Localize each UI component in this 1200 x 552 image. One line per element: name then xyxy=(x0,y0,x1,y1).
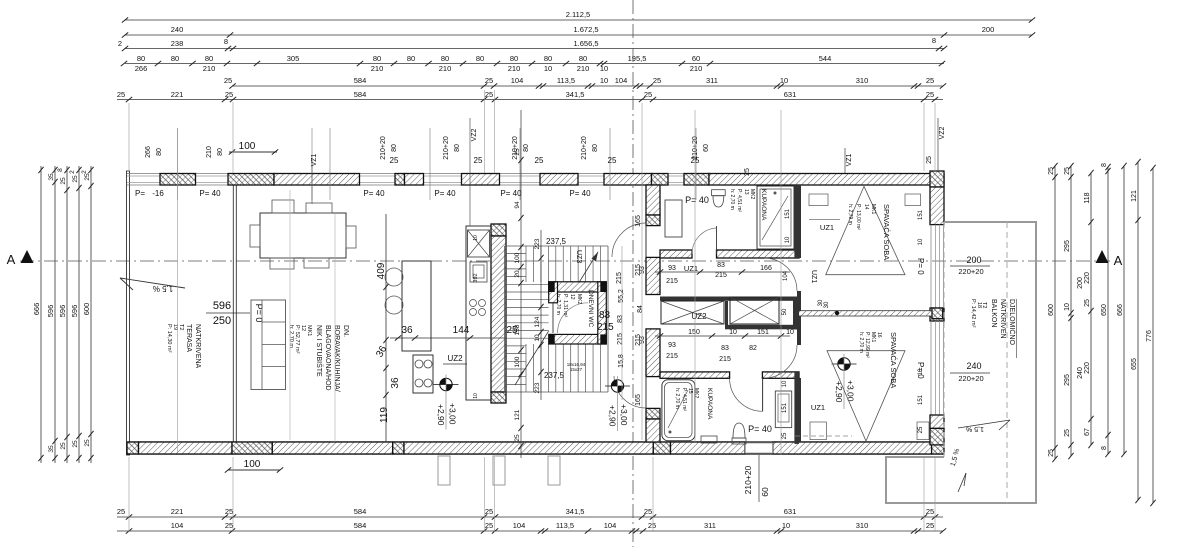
svg-text:25: 25 xyxy=(60,177,67,185)
svg-text:25: 25 xyxy=(744,168,751,176)
svg-text:NIK I STUBIŠTE: NIK I STUBIŠTE xyxy=(315,325,324,377)
svg-text:151: 151 xyxy=(785,208,791,219)
svg-text:35: 35 xyxy=(48,445,55,453)
svg-text:100: 100 xyxy=(239,141,256,152)
svg-text:10: 10 xyxy=(544,64,552,73)
svg-text:650: 650 xyxy=(1101,304,1108,316)
svg-text:2: 2 xyxy=(118,39,122,48)
svg-text:25: 25 xyxy=(648,521,656,530)
svg-text:P: 14,42 m²: P: 14,42 m² xyxy=(970,299,976,328)
svg-text:10: 10 xyxy=(600,76,608,85)
svg-text:10: 10 xyxy=(473,235,479,241)
svg-text:P= 40: P= 40 xyxy=(434,189,456,198)
svg-text:25: 25 xyxy=(1084,299,1091,307)
svg-text:25: 25 xyxy=(485,90,493,99)
svg-text:80: 80 xyxy=(407,54,415,63)
svg-text:P: 4,51 m²: P: 4,51 m² xyxy=(736,189,742,212)
svg-text:93: 93 xyxy=(639,266,646,274)
svg-text:h: 2,79 m: h: 2,79 m xyxy=(847,204,853,225)
svg-text:BALKON: BALKON xyxy=(990,299,997,327)
svg-text:10: 10 xyxy=(600,64,608,73)
svg-text:104: 104 xyxy=(513,521,526,530)
svg-text:80: 80 xyxy=(592,144,599,152)
svg-text:25: 25 xyxy=(535,156,544,165)
svg-text:10: 10 xyxy=(918,238,924,245)
svg-text:10: 10 xyxy=(782,521,790,530)
svg-text:93: 93 xyxy=(639,336,646,344)
svg-text:25: 25 xyxy=(390,156,399,165)
svg-text:25: 25 xyxy=(1048,167,1055,175)
svg-text:60: 60 xyxy=(692,54,700,63)
svg-text:215: 215 xyxy=(719,356,731,363)
svg-text:P= 40: P= 40 xyxy=(500,189,522,198)
svg-text:584: 584 xyxy=(354,76,367,85)
svg-text:25: 25 xyxy=(117,90,125,99)
svg-text:596: 596 xyxy=(58,305,67,318)
svg-text:158: 158 xyxy=(514,324,521,335)
svg-text:215: 215 xyxy=(666,278,678,285)
svg-text:600: 600 xyxy=(82,303,91,316)
svg-text:25: 25 xyxy=(514,148,521,156)
svg-text:240: 240 xyxy=(966,361,981,371)
svg-text:2: 2 xyxy=(69,170,76,174)
svg-text:2: 2 xyxy=(81,170,88,174)
svg-text:210+20: 210+20 xyxy=(743,465,753,494)
svg-text:UZ1: UZ1 xyxy=(684,264,698,273)
svg-text:8: 8 xyxy=(1101,163,1108,167)
svg-text:SPAVAĆA SOBA: SPAVAĆA SOBA xyxy=(889,332,898,388)
svg-text:215: 215 xyxy=(666,353,678,360)
svg-text:25: 25 xyxy=(84,439,91,447)
svg-text:210: 210 xyxy=(577,64,590,73)
svg-text:215: 215 xyxy=(617,333,624,345)
svg-text:631: 631 xyxy=(784,90,797,99)
svg-text:144: 144 xyxy=(453,325,470,336)
svg-text:584: 584 xyxy=(354,507,367,516)
svg-text:14: 14 xyxy=(863,204,869,210)
svg-text:221: 221 xyxy=(171,90,184,99)
svg-text:25: 25 xyxy=(117,507,125,516)
svg-text:12: 12 xyxy=(569,294,575,300)
svg-text:25: 25 xyxy=(474,156,483,165)
svg-text:210: 210 xyxy=(508,64,521,73)
svg-text:220+20: 220+20 xyxy=(958,267,983,276)
svg-text:238: 238 xyxy=(171,39,184,48)
svg-text:104: 104 xyxy=(511,76,524,85)
svg-text:+3,00: +3,00 xyxy=(846,380,856,402)
svg-text:210: 210 xyxy=(203,64,216,73)
svg-text:113,5: 113,5 xyxy=(557,76,575,85)
svg-text:10: 10 xyxy=(1064,303,1071,311)
svg-text:220: 220 xyxy=(1084,362,1091,374)
svg-text:80: 80 xyxy=(454,144,461,152)
svg-text:210+20: 210+20 xyxy=(581,136,588,160)
svg-text:25: 25 xyxy=(72,175,79,183)
svg-text:h: 2,70 m: h: 2,70 m xyxy=(555,294,561,315)
svg-text:596: 596 xyxy=(46,305,55,318)
svg-text:10: 10 xyxy=(780,76,788,85)
svg-text:655: 655 xyxy=(1131,358,1138,370)
svg-text:210: 210 xyxy=(206,146,213,158)
svg-text:P: 13,00 m²: P: 13,00 m² xyxy=(855,204,861,230)
svg-text:13: 13 xyxy=(743,189,749,195)
svg-text:341,5: 341,5 xyxy=(566,90,585,99)
svg-text:25: 25 xyxy=(60,442,67,450)
svg-text:SPAVAĆA SOBA: SPAVAĆA SOBA xyxy=(882,204,891,260)
svg-text:25: 25 xyxy=(84,173,91,181)
svg-text:P= 0: P= 0 xyxy=(254,304,264,323)
svg-text:DNEVNI WC: DNEVNI WC xyxy=(587,290,594,328)
svg-text:MK2: MK2 xyxy=(576,294,582,305)
svg-text:25: 25 xyxy=(926,521,934,530)
svg-text:237,5: 237,5 xyxy=(546,237,567,246)
svg-text:119: 119 xyxy=(379,407,390,423)
svg-text:P= 40: P= 40 xyxy=(685,195,709,205)
svg-text:596: 596 xyxy=(70,305,79,318)
svg-text:25: 25 xyxy=(926,90,934,99)
svg-text:80: 80 xyxy=(391,144,398,152)
svg-text:151: 151 xyxy=(918,394,924,405)
svg-text:25: 25 xyxy=(485,521,493,530)
svg-text:+2,90: +2,90 xyxy=(608,405,618,427)
svg-text:25: 25 xyxy=(225,521,233,530)
svg-text:P: 4,51 m²: P: 4,51 m² xyxy=(681,388,687,411)
svg-text:25: 25 xyxy=(1064,167,1071,175)
svg-text:A: A xyxy=(7,252,16,267)
svg-text:166: 166 xyxy=(760,265,772,272)
svg-text:83: 83 xyxy=(617,315,624,323)
svg-text:83: 83 xyxy=(717,262,725,269)
svg-text:200: 200 xyxy=(1077,277,1084,289)
svg-text:+3,00: +3,00 xyxy=(448,403,458,425)
svg-text:BORAVAK/KUHINJA/: BORAVAK/KUHINJA/ xyxy=(333,325,340,392)
svg-text:25: 25 xyxy=(926,156,933,164)
svg-text:165: 165 xyxy=(635,215,642,227)
svg-text:MK2: MK2 xyxy=(749,189,755,200)
svg-text:200: 200 xyxy=(966,255,981,265)
svg-text:10: 10 xyxy=(729,329,737,336)
svg-text:25: 25 xyxy=(224,76,232,85)
svg-text:93: 93 xyxy=(668,342,676,349)
svg-text:15: 15 xyxy=(687,388,693,394)
svg-text:93: 93 xyxy=(668,265,676,272)
svg-text:NATKRIVEN: NATKRIVEN xyxy=(999,299,1006,339)
svg-text:311: 311 xyxy=(706,76,718,85)
svg-text:20: 20 xyxy=(514,270,521,278)
svg-text:100: 100 xyxy=(244,459,261,470)
svg-text:10: 10 xyxy=(473,393,479,399)
svg-text:8: 8 xyxy=(224,37,228,46)
svg-text:104: 104 xyxy=(604,521,617,530)
svg-text:584: 584 xyxy=(354,90,367,99)
svg-text:80: 80 xyxy=(579,54,587,63)
svg-text:80: 80 xyxy=(217,148,224,156)
svg-text:67: 67 xyxy=(1084,428,1091,436)
svg-text:MK2: MK2 xyxy=(693,388,699,399)
svg-text:25: 25 xyxy=(72,440,79,448)
svg-text:VZ1: VZ1 xyxy=(311,153,318,166)
svg-text:UZ1: UZ1 xyxy=(811,403,825,412)
svg-text:P= 40: P= 40 xyxy=(748,424,772,434)
svg-text:215: 215 xyxy=(597,322,614,333)
svg-text:P: 14,30 m²: P: 14,30 m² xyxy=(166,324,172,353)
svg-text:25: 25 xyxy=(653,76,661,85)
svg-text:25: 25 xyxy=(926,76,934,85)
svg-text:NATKRIVENA: NATKRIVENA xyxy=(194,324,201,369)
svg-text:BLAGOVAONA/HOD: BLAGOVAONA/HOD xyxy=(324,325,331,391)
svg-text:2.112,5: 2.112,5 xyxy=(566,10,590,19)
svg-text:80: 80 xyxy=(171,54,179,63)
svg-text:h: 2,70 m: h: 2,70 m xyxy=(858,332,864,353)
svg-text:DJELOMIČNO: DJELOMIČNO xyxy=(1008,299,1017,345)
svg-text:409: 409 xyxy=(376,262,387,279)
svg-text:776: 776 xyxy=(1146,330,1153,342)
svg-text:10: 10 xyxy=(785,236,791,243)
svg-text:1.672,5: 1.672,5 xyxy=(573,25,598,34)
svg-text:80: 80 xyxy=(137,54,145,63)
svg-text:DN.: DN. xyxy=(342,325,349,337)
svg-text:240: 240 xyxy=(1077,367,1084,379)
svg-text:-16: -16 xyxy=(152,189,164,198)
svg-text:113,5: 113,5 xyxy=(556,521,574,530)
svg-text:237,5: 237,5 xyxy=(544,371,565,380)
svg-text:341,5: 341,5 xyxy=(566,507,585,516)
svg-text:124: 124 xyxy=(534,316,541,327)
svg-text:10: 10 xyxy=(786,329,794,336)
svg-text:544: 544 xyxy=(819,54,832,63)
svg-text:121: 121 xyxy=(1131,190,1138,202)
svg-text:80: 80 xyxy=(544,54,552,63)
svg-text:15,8: 15,8 xyxy=(618,354,625,368)
svg-text:295: 295 xyxy=(1064,240,1071,252)
svg-text:1.656,5: 1.656,5 xyxy=(573,39,598,48)
svg-text:60: 60 xyxy=(703,144,710,152)
svg-text:TERASA: TERASA xyxy=(185,324,192,352)
svg-text:25: 25 xyxy=(514,434,521,442)
svg-text:295: 295 xyxy=(1064,374,1071,386)
svg-text:100: 100 xyxy=(514,356,521,367)
svg-text:118: 118 xyxy=(1084,192,1091,203)
svg-text:104: 104 xyxy=(615,76,628,85)
svg-text:UZ1: UZ1 xyxy=(820,223,834,232)
svg-text:104: 104 xyxy=(171,521,184,530)
svg-text:266: 266 xyxy=(145,146,152,158)
svg-text:210+20: 210+20 xyxy=(380,136,387,160)
svg-text:151: 151 xyxy=(918,209,924,220)
svg-text:UZ2: UZ2 xyxy=(447,354,463,363)
svg-text:15x27: 15x27 xyxy=(570,367,583,372)
svg-text:VZ1: VZ1 xyxy=(846,153,853,166)
svg-text:25: 25 xyxy=(608,156,617,165)
svg-text:83: 83 xyxy=(599,310,611,321)
svg-text:210: 210 xyxy=(439,64,452,73)
svg-text:P= 40: P= 40 xyxy=(199,189,221,198)
svg-text:1,5 %: 1,5 % xyxy=(153,284,173,293)
svg-text:311: 311 xyxy=(704,521,716,530)
svg-text:35: 35 xyxy=(48,173,55,181)
svg-text:h: 2,70 m: h: 2,70 m xyxy=(729,189,735,210)
svg-text:83: 83 xyxy=(721,345,729,352)
svg-text:25: 25 xyxy=(918,426,924,433)
svg-text:UZ1: UZ1 xyxy=(810,270,817,283)
svg-text:+2,90: +2,90 xyxy=(436,404,446,426)
svg-text:80: 80 xyxy=(441,54,449,63)
svg-text:25: 25 xyxy=(644,507,652,516)
svg-text:392: 392 xyxy=(473,273,479,282)
svg-text:25: 25 xyxy=(485,507,493,516)
svg-text:VZ2: VZ2 xyxy=(471,128,478,141)
svg-text:25: 25 xyxy=(225,90,233,99)
svg-text:25: 25 xyxy=(782,432,788,439)
svg-text:215: 215 xyxy=(715,272,727,279)
svg-text:195,5: 195,5 xyxy=(628,54,647,63)
svg-text:220: 220 xyxy=(1084,272,1091,284)
svg-text:55,2: 55,2 xyxy=(618,289,625,303)
svg-text:25: 25 xyxy=(1064,429,1071,437)
svg-text:210: 210 xyxy=(371,64,384,73)
svg-text:+3,00: +3,00 xyxy=(619,404,629,426)
svg-text:UZ3: UZ3 xyxy=(575,250,582,263)
svg-text:50: 50 xyxy=(782,308,788,315)
svg-text:666: 666 xyxy=(1117,304,1124,316)
svg-text:165: 165 xyxy=(635,394,642,406)
svg-text:8: 8 xyxy=(1101,446,1108,450)
svg-text:KUPAONA: KUPAONA xyxy=(706,388,713,420)
svg-text:+2,90: +2,90 xyxy=(834,381,844,403)
svg-text:KUPAONA: KUPAONA xyxy=(760,189,767,221)
svg-text:121: 121 xyxy=(514,409,521,420)
svg-text:P: 1,31 m²: P: 1,31 m² xyxy=(562,294,568,317)
svg-text:10: 10 xyxy=(782,380,788,387)
svg-text:223: 223 xyxy=(534,238,541,249)
svg-text:250: 250 xyxy=(213,315,231,327)
svg-text:80: 80 xyxy=(523,144,530,152)
svg-text:240: 240 xyxy=(171,25,184,34)
svg-text:82: 82 xyxy=(749,345,757,352)
svg-text:P=: P= xyxy=(135,189,145,198)
svg-text:P= 40: P= 40 xyxy=(363,189,385,198)
svg-text:631: 631 xyxy=(784,507,797,516)
svg-text:305: 305 xyxy=(287,54,300,63)
svg-text:310: 310 xyxy=(856,76,869,85)
svg-text:P= 0: P= 0 xyxy=(916,362,925,379)
svg-text:1,5 %: 1,5 % xyxy=(966,425,984,432)
svg-text:80: 80 xyxy=(156,148,163,156)
svg-text:25: 25 xyxy=(644,90,652,99)
svg-text:VZ2: VZ2 xyxy=(939,126,946,139)
svg-text:220+20: 220+20 xyxy=(958,374,983,383)
svg-text:8: 8 xyxy=(932,36,936,45)
svg-text:30: 30 xyxy=(824,301,830,308)
svg-text:666: 666 xyxy=(32,303,41,316)
svg-text:A: A xyxy=(1114,253,1123,268)
svg-text:223: 223 xyxy=(534,382,541,393)
svg-text:584: 584 xyxy=(354,521,367,530)
svg-text:150: 150 xyxy=(688,329,700,336)
svg-text:200: 200 xyxy=(982,25,995,34)
svg-text:310: 310 xyxy=(856,521,869,530)
svg-text:94: 94 xyxy=(514,201,521,209)
svg-text:36: 36 xyxy=(390,377,401,389)
svg-text:151: 151 xyxy=(757,329,769,336)
svg-text:25: 25 xyxy=(485,76,493,85)
svg-text:25: 25 xyxy=(1048,449,1055,457)
svg-text:UZ2: UZ2 xyxy=(691,312,707,321)
svg-text:80: 80 xyxy=(205,54,213,63)
svg-text:80: 80 xyxy=(476,54,484,63)
svg-text:210: 210 xyxy=(690,64,703,73)
svg-text:600: 600 xyxy=(1048,304,1055,316)
svg-text:h: 2,70 m: h: 2,70 m xyxy=(674,388,680,409)
svg-text:60: 60 xyxy=(760,487,770,497)
svg-text:80: 80 xyxy=(510,54,518,63)
svg-text:151: 151 xyxy=(782,402,788,413)
svg-text:100: 100 xyxy=(514,252,521,263)
svg-text:8: 8 xyxy=(57,168,64,172)
svg-text:84: 84 xyxy=(637,305,644,313)
svg-text:MK1: MK1 xyxy=(870,204,876,215)
svg-text:266: 266 xyxy=(135,64,148,73)
svg-text:25: 25 xyxy=(926,507,934,516)
svg-text:80: 80 xyxy=(373,54,381,63)
svg-text:25: 25 xyxy=(225,507,233,516)
svg-text:P= 0: P= 0 xyxy=(916,258,925,275)
svg-text:P= 40: P= 40 xyxy=(569,189,591,198)
svg-text:210+20: 210+20 xyxy=(443,136,450,160)
svg-text:596: 596 xyxy=(213,300,231,312)
svg-text:104: 104 xyxy=(783,270,789,281)
svg-text:10: 10 xyxy=(534,334,541,342)
svg-text:221: 221 xyxy=(171,507,184,516)
svg-text:36: 36 xyxy=(401,325,413,336)
svg-text:h: 2,70 m: h: 2,70 m xyxy=(288,325,294,348)
